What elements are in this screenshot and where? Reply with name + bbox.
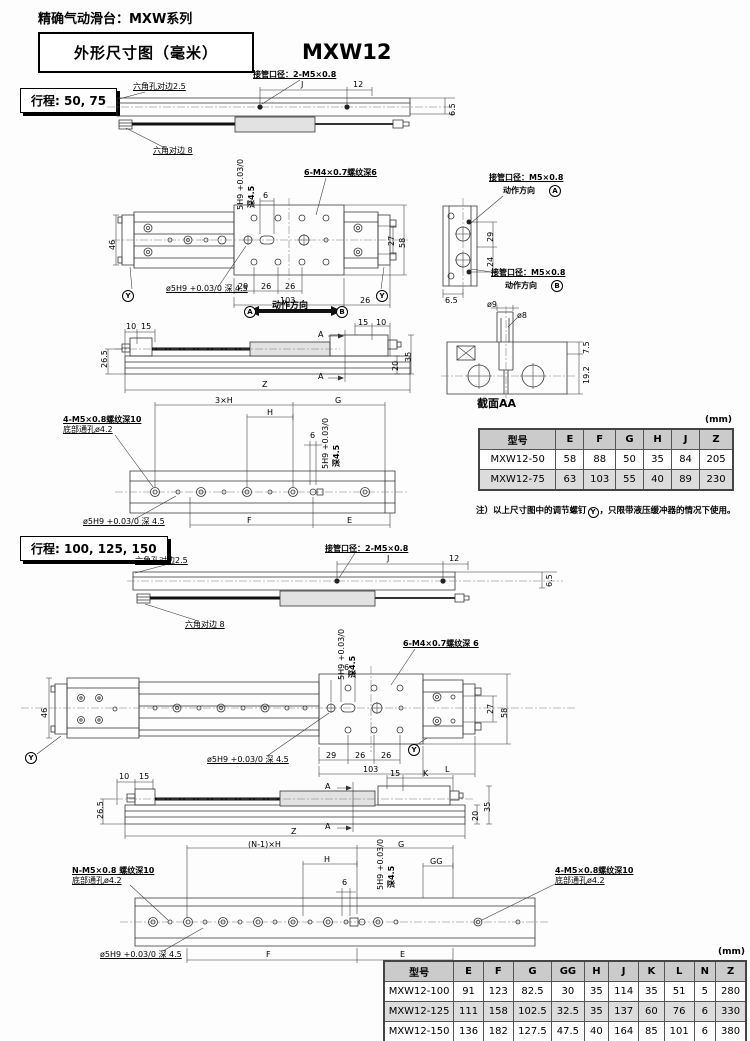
pin-depth-label: 深4.5 xyxy=(332,445,341,467)
dim-26b: 26 xyxy=(285,282,295,291)
pin-tolerance-label: 5H9 +0.03/0 xyxy=(337,629,346,680)
pin-tolerance-label: 5H9 +0.03/0 xyxy=(321,418,330,469)
dim-cell: 380 xyxy=(716,1022,746,1041)
s1-bottom-view: 3×H G H 6 5H9 +0.03/0 深4.5 4-M5×0.8螺纹深10… xyxy=(55,393,420,538)
model-cell: MXW12-125 xyxy=(384,1002,454,1022)
direction-a-mark: A xyxy=(244,306,256,318)
dim-6-5: 6.5 xyxy=(545,574,554,587)
dim-27: 27 xyxy=(387,236,396,246)
table-2: 型号 E F G GG H J K L N Z MXW12-100 91 123… xyxy=(383,960,747,1041)
dim-15: 15 xyxy=(139,772,149,781)
direction-b-mark: B xyxy=(551,280,563,292)
model-cell: MXW12-75 xyxy=(479,470,556,491)
dim-cell: 103 xyxy=(584,470,616,491)
dim-cell: 82.5 xyxy=(513,982,552,1002)
note-text: 注）以上尺寸图中的调节螺钉 xyxy=(476,506,587,516)
dim-cell: 5 xyxy=(694,982,716,1002)
dim-27: 27 xyxy=(486,704,495,714)
hex-hole-callout: 六角孔对边2.5 xyxy=(133,82,186,91)
thread-n-callout-line1: N-M5×0.8 螺纹深10 xyxy=(72,866,154,875)
dim-15: 15 xyxy=(141,322,151,331)
port-callout: 接管口径：2-M5×0.8 xyxy=(253,70,336,79)
dim-cell: 32.5 xyxy=(552,1002,584,1022)
dim-cell: 63 xyxy=(556,470,584,491)
adjuster-y-mark: Y xyxy=(376,290,388,302)
dimension-table-1: (mm) 型号 E F G H J Z MXW12-50 58 88 50 35… xyxy=(478,428,734,491)
dim-h: H xyxy=(267,408,273,417)
dim-6: 6 xyxy=(344,663,349,672)
col-header-model: 型号 xyxy=(384,961,454,982)
dim-cell: 85 xyxy=(639,1022,665,1041)
model-cell: MXW12-100 xyxy=(384,982,454,1002)
dim-cell: 30 xyxy=(552,982,584,1002)
adjuster-y-mark: Y xyxy=(25,752,37,764)
hex-flat-callout: 六角对边 8 xyxy=(185,620,225,629)
dim-h: H xyxy=(324,855,330,864)
dim-6: 6 xyxy=(342,878,347,887)
direction-b-mark: B xyxy=(336,306,348,318)
dim-cell: 164 xyxy=(609,1022,639,1041)
dim-gg: GG xyxy=(430,857,442,866)
pin-hole-callout: ø5H9 +0.03/0 深 4.5 xyxy=(207,755,289,764)
dim-12: 12 xyxy=(449,554,459,563)
dim-10-right: 10 xyxy=(376,318,386,327)
dim-58: 58 xyxy=(500,708,509,718)
s1-top-view: 5H9 +0.03/0 深4.5 6 6-M4×0.7螺纹深6 46 27 58… xyxy=(108,160,428,320)
port-callout: 接管口径：2-M5×0.8 xyxy=(325,544,408,553)
dim-cell: 230 xyxy=(700,470,733,491)
dim-7-5: 7.5 xyxy=(582,341,591,354)
section-a-top: A xyxy=(318,330,323,339)
dim-cell: 136 xyxy=(454,1022,484,1041)
thread-callout: 6-M4×0.7螺纹深 6 xyxy=(403,639,479,648)
section-aa-view: ø9 ø8 7.5 19.2 截面AA xyxy=(435,300,610,415)
dim-cell: 158 xyxy=(483,1002,513,1022)
col-header-f: F xyxy=(584,429,616,450)
section-a-bottom: A xyxy=(325,822,330,831)
dim-cell: 137 xyxy=(609,1002,639,1022)
table-row: MXW12-50 58 88 50 35 84 205 xyxy=(479,450,733,470)
dim-cell: 60 xyxy=(639,1002,665,1022)
thread-4-callout-line2: 底部通孔ø4.2 xyxy=(555,876,605,885)
direction-b-label: 动作方向 xyxy=(505,281,537,290)
dim-cell: 84 xyxy=(672,450,700,470)
dim-cell: 50 xyxy=(616,450,644,470)
dim-cell: 280 xyxy=(716,982,746,1002)
dim-15-right: 15 xyxy=(358,318,368,327)
col-header-g: G xyxy=(513,961,552,982)
dimension-drawing-box: 外形尺寸图（毫米） xyxy=(38,32,254,73)
dim-20: 20 xyxy=(471,811,480,821)
dim-26-5: 26.5 xyxy=(100,350,109,368)
dim-dia8: ø8 xyxy=(517,311,527,320)
s1-side-view: 六角孔对边2.5 接管口径：2-M5×0.8 J 12 6.5 六角对边 8 xyxy=(105,70,465,165)
dim-cell: 91 xyxy=(454,982,484,1002)
unit-label: (mm) xyxy=(705,415,732,425)
dim-46: 46 xyxy=(40,708,49,718)
adjuster-y-mark: Y xyxy=(588,507,599,518)
dim-12: 12 xyxy=(353,80,363,89)
dim-cell: 6 xyxy=(694,1022,716,1041)
dim-cell: 35 xyxy=(584,1002,609,1022)
pin-hole-callout: ø5H9 +0.03/0 深 4.5 xyxy=(83,517,165,526)
col-header-j: J xyxy=(609,961,639,982)
dim-6-5: 6.5 xyxy=(448,103,457,116)
col-header-j: J xyxy=(672,429,700,450)
note-text: ，只限带液压缓冲器的情况下使用。 xyxy=(600,506,736,516)
unit-label: (mm) xyxy=(718,947,745,957)
dim-cell: 88 xyxy=(584,450,616,470)
s2-bottom-view: (N-1)×H G H 6 5H9 +0.03/0 深4.5 GG N-M5×0… xyxy=(58,840,683,972)
dim-f: F xyxy=(247,516,252,525)
dim-cell: 40 xyxy=(584,1022,609,1041)
dim-cell: 114 xyxy=(609,982,639,1002)
dim-cell: 6 xyxy=(694,1002,716,1022)
dim-cell: 89 xyxy=(672,470,700,491)
pin-tolerance-label: 5H9 +0.03/0 xyxy=(236,159,245,210)
section-a-bottom: A xyxy=(318,372,323,381)
dim-26a: 26 xyxy=(355,751,365,760)
dim-cell: 101 xyxy=(664,1022,694,1041)
dim-26-5: 26.5 xyxy=(96,801,105,819)
thread-callout-line1: 4-M5×0.8螺纹深10 xyxy=(63,415,141,424)
col-header-z: Z xyxy=(716,961,746,982)
dim-26a: 26 xyxy=(261,282,271,291)
dim-35: 35 xyxy=(404,352,413,362)
dim-10: 10 xyxy=(126,322,136,331)
pin-depth-label: 深4.5 xyxy=(348,656,357,678)
dim-f: F xyxy=(266,950,271,959)
dim-cell: 40 xyxy=(644,470,672,491)
col-header-model: 型号 xyxy=(479,429,556,450)
dim-cell: 58 xyxy=(556,450,584,470)
pin-depth-label: 深4.5 xyxy=(247,186,256,208)
dim-cell: 123 xyxy=(483,982,513,1002)
table-row: MXW12-100 91 123 82.5 30 35 114 35 51 5 … xyxy=(384,982,746,1002)
col-header-e: E xyxy=(454,961,484,982)
table-row: MXW12-75 63 103 55 40 89 230 xyxy=(479,470,733,491)
dim-cell: 76 xyxy=(664,1002,694,1022)
hex-flat-callout: 六角对边 8 xyxy=(153,146,193,155)
dim-6: 6 xyxy=(310,431,315,440)
model-cell: MXW12-150 xyxy=(384,1022,454,1041)
section-a-top: A xyxy=(325,782,330,791)
dim-58: 58 xyxy=(398,238,407,248)
dim-dia9: ø9 xyxy=(487,300,497,309)
dim-cell: 182 xyxy=(483,1022,513,1041)
col-header-k: K xyxy=(639,961,665,982)
dim-15-right: 15 xyxy=(390,769,400,778)
col-header-f: F xyxy=(483,961,513,982)
col-header-h: H xyxy=(644,429,672,450)
direction-a-label: 动作方向 xyxy=(503,186,535,195)
dim-20: 20 xyxy=(391,361,400,371)
dim-29: 29 xyxy=(326,751,336,760)
pin-depth-label: 深4.5 xyxy=(387,866,396,888)
dim-cell: 205 xyxy=(700,450,733,470)
dim-cell: 51 xyxy=(664,982,694,1002)
dim-46: 46 xyxy=(108,240,117,250)
dim-z: Z xyxy=(291,827,296,836)
s2-top-view: 5H9 +0.03/0 深4.5 6 6-M4×0.7螺纹深 6 46 27 5… xyxy=(15,630,615,790)
dim-cell: 47.5 xyxy=(552,1022,584,1041)
table-note: 注）以上尺寸图中的调节螺钉Y，只限带液压缓冲器的情况下使用。 xyxy=(476,504,736,518)
dim-29: 29 xyxy=(486,232,495,242)
page-title: 精确气动滑台：MXW系列 xyxy=(38,8,192,27)
hex-hole-callout: 六角孔对边2.5 xyxy=(135,556,188,565)
model-heading: MXW12 xyxy=(302,40,391,64)
col-header-g: G xyxy=(616,429,644,450)
adjuster-y-mark: Y xyxy=(122,290,134,302)
dim-26c: 26 xyxy=(360,296,370,305)
dim-cell: 127.5 xyxy=(513,1022,552,1041)
pin-hole-callout: ø5H9 +0.03/0 深 4.5 xyxy=(166,284,248,293)
section-aa-label: 截面AA xyxy=(477,398,516,411)
dim-z: Z xyxy=(262,380,267,389)
direction-label: 动作方向 xyxy=(272,301,308,311)
port-a-callout: 接管口径：M5×0.8 xyxy=(489,173,563,182)
dim-j: J xyxy=(301,80,303,89)
dim-g: G xyxy=(398,840,404,849)
table-row: MXW12-150 136 182 127.5 47.5 40 164 85 1… xyxy=(384,1022,746,1041)
col-header-e: E xyxy=(556,429,584,450)
s2-side-view: 六角孔对边2.5 接管口径：2-M5×0.8 J 12 6.5 六角对边 8 xyxy=(125,542,570,637)
pin-tolerance-label: 5H9 +0.03/0 xyxy=(376,839,385,890)
adjuster-y-mark: Y xyxy=(408,744,420,756)
thread-callout-line2: 底部通孔ø4.2 xyxy=(63,425,113,434)
dim-19-2: 19.2 xyxy=(582,366,591,384)
dim-29: 29 xyxy=(238,282,248,291)
dim-35: 35 xyxy=(483,802,492,812)
pin-hole-callout: ø5H9 +0.03/0 深 4.5 xyxy=(100,950,182,959)
dim-e: E xyxy=(400,950,405,959)
table-row: MXW12-125 111 158 102.5 32.5 35 137 60 7… xyxy=(384,1002,746,1022)
col-header-gg: GG xyxy=(552,961,584,982)
dim-26b: 26 xyxy=(381,751,391,760)
dim-cell: 35 xyxy=(584,982,609,1002)
col-header-n: N xyxy=(694,961,716,982)
dim-24: 24 xyxy=(486,257,495,267)
catalog-page: 精确气动滑台：MXW系列 外形尺寸图（毫米） MXW12 行程: 50, 75 … xyxy=(0,0,750,1041)
dim-e: E xyxy=(347,516,352,525)
thread-4-callout-line1: 4-M5×0.8螺纹深10 xyxy=(555,866,633,875)
dim-n1xh: (N-1)×H xyxy=(248,840,281,849)
model-cell: MXW12-50 xyxy=(479,450,556,470)
dim-cell: 35 xyxy=(644,450,672,470)
port-b-callout: 接管口径：M5×0.8 xyxy=(491,268,565,277)
col-header-z: Z xyxy=(700,429,733,450)
dim-cell: 55 xyxy=(616,470,644,491)
dimension-table-2: (mm) 型号 E F G GG H J K L N Z MXW12-100 9… xyxy=(383,960,747,1041)
dim-cell: 102.5 xyxy=(513,1002,552,1022)
dim-cell: 35 xyxy=(639,982,665,1002)
s2-top-view-drawing xyxy=(15,630,615,790)
dim-3xh: 3×H xyxy=(215,396,233,405)
stroke-label-1: 行程: 50, 75 xyxy=(20,88,117,113)
dim-6: 6 xyxy=(263,191,268,200)
thread-callout: 6-M4×0.7螺纹深6 xyxy=(304,168,377,177)
dim-g: G xyxy=(335,396,341,405)
table-1: 型号 E F G H J Z MXW12-50 58 88 50 35 84 2… xyxy=(478,428,734,491)
dim-10: 10 xyxy=(119,772,129,781)
thread-n-callout-line2: 底部通孔ø4.2 xyxy=(72,876,122,885)
col-header-h: H xyxy=(584,961,609,982)
s1-end-view: 接管口径：M5×0.8 动作方向 A 29 24 接管口径：M5×0.8 动作方… xyxy=(425,168,640,308)
direction-a-mark: A xyxy=(549,185,561,197)
dim-cell: 330 xyxy=(716,1002,746,1022)
dim-cell: 111 xyxy=(454,1002,484,1022)
col-header-l: L xyxy=(664,961,694,982)
dim-k: K xyxy=(423,769,428,778)
dim-j: J xyxy=(387,554,389,563)
